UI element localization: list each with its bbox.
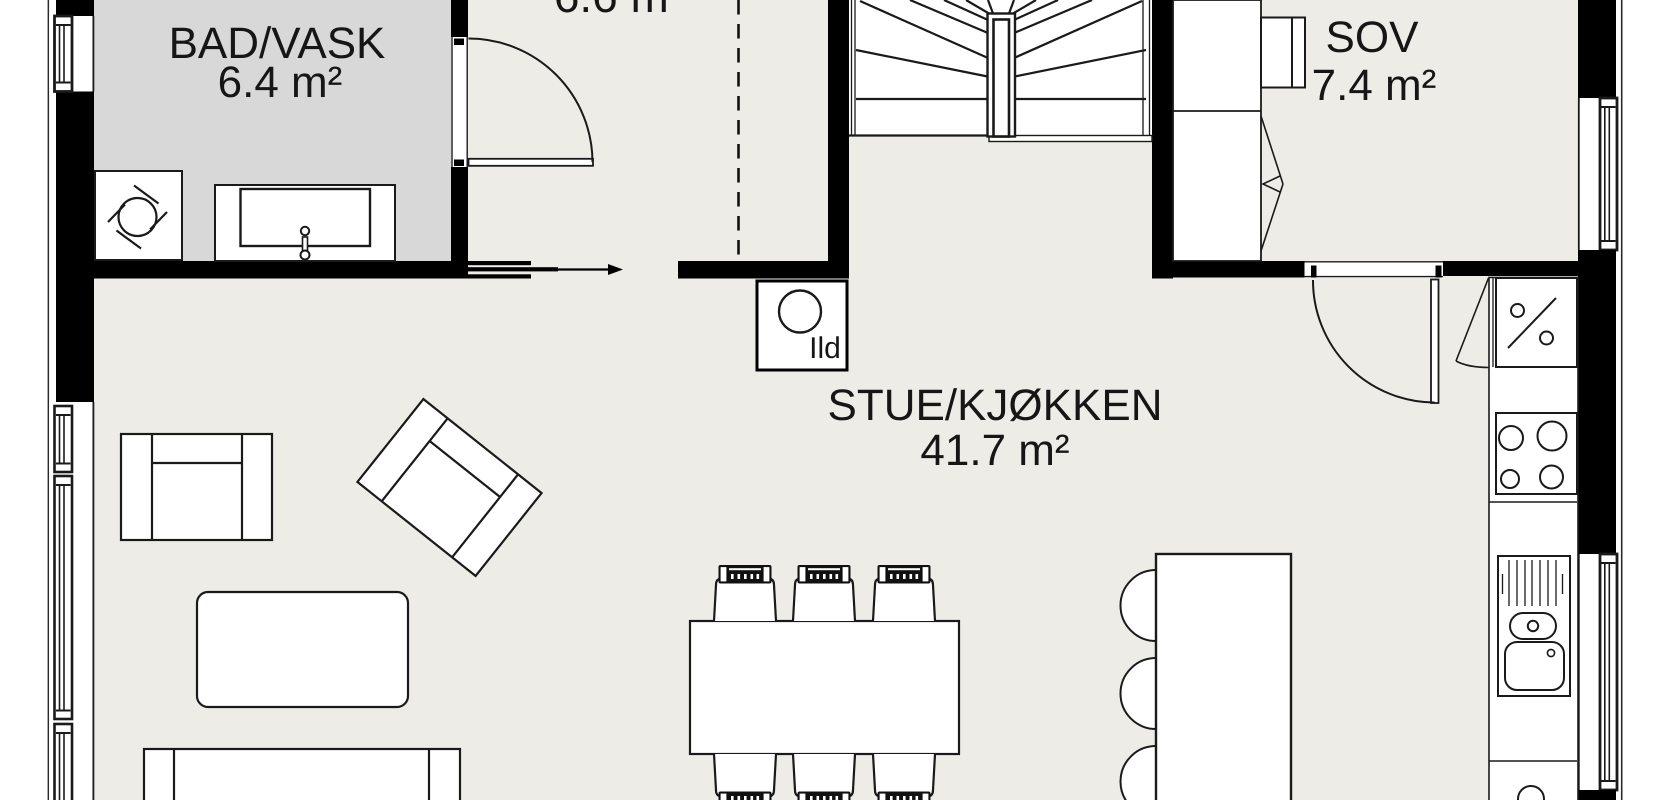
svg-text:SOV: SOV: [1326, 13, 1420, 62]
svg-text:STUE/KJØKKEN: STUE/KJØKKEN: [828, 381, 1163, 430]
svg-text:7.4 m²: 7.4 m²: [1312, 61, 1437, 110]
svg-text:6.6 m²: 6.6 m²: [554, 0, 684, 22]
svg-text:41.7 m²: 41.7 m²: [920, 426, 1069, 475]
svg-text:6.4 m²: 6.4 m²: [218, 58, 343, 107]
svg-text:Ild: Ild: [809, 332, 841, 365]
